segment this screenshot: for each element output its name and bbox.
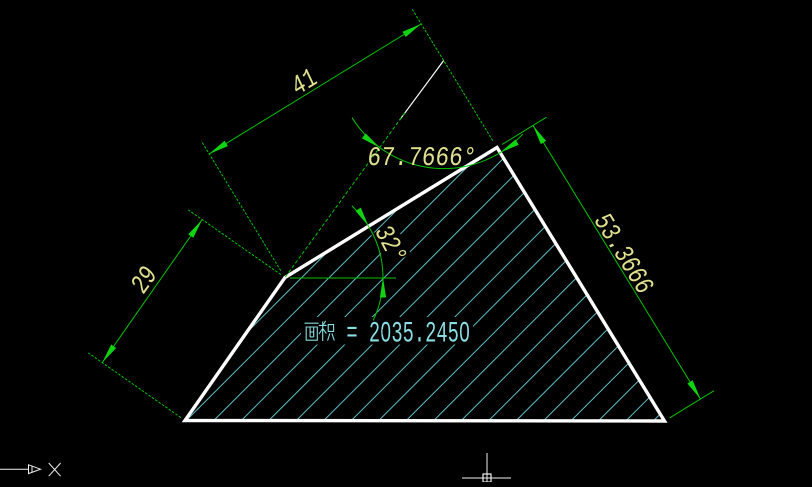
svg-text:= 2035.2450: = 2035.2450: [346, 316, 470, 351]
svg-text:67.7666°: 67.7666°: [366, 142, 479, 173]
